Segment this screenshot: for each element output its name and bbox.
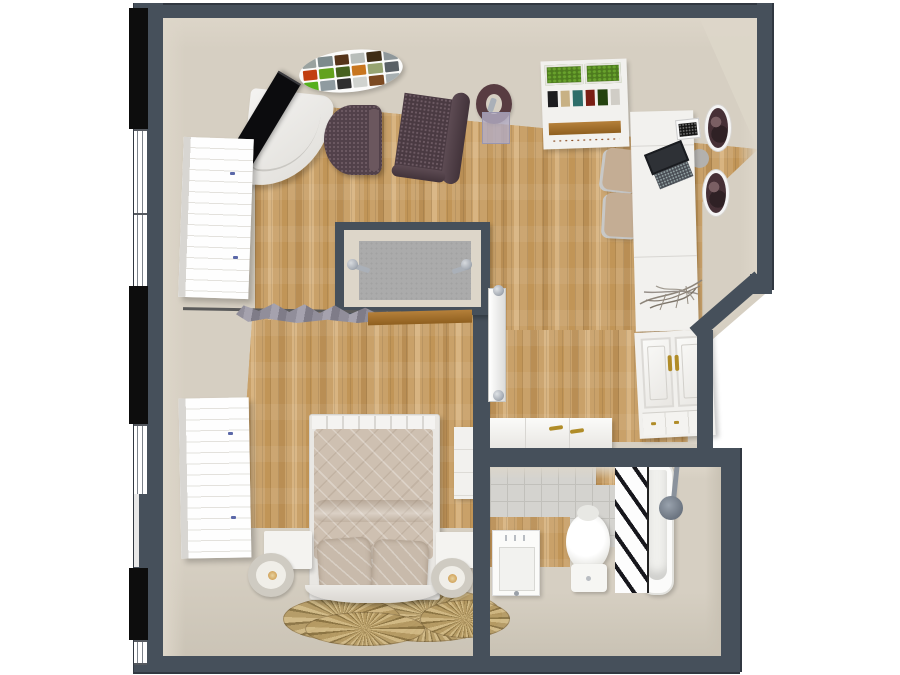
planter-box — [585, 63, 622, 84]
book-spine — [585, 90, 595, 106]
shelf-cell — [319, 68, 334, 79]
shower-head[interactable] — [659, 496, 683, 520]
floor-plan-canvas — [0, 0, 900, 675]
wall-dressing-right — [697, 330, 713, 452]
wall-top — [146, 3, 772, 18]
shelf-cell — [334, 54, 349, 65]
wall-right — [757, 3, 774, 290]
shelf-items — [551, 137, 619, 143]
book-row — [548, 89, 621, 108]
bathtub-basin — [647, 470, 667, 580]
wardrobe[interactable] — [178, 137, 254, 299]
plant-shelf[interactable] — [540, 59, 629, 150]
window — [134, 494, 147, 567]
book-spine — [573, 90, 583, 106]
wall-plate-decor[interactable] — [703, 170, 729, 216]
wall-left — [146, 3, 163, 672]
sink-drain — [514, 591, 519, 596]
wardrobe-handle — [233, 256, 238, 259]
lamp-bulb — [448, 574, 457, 583]
wardrobe-door — [641, 337, 675, 408]
dresser-seam — [569, 418, 570, 452]
desk-seam — [634, 255, 697, 258]
window — [134, 640, 147, 665]
wardrobe-handle — [674, 355, 679, 371]
book-spine — [598, 89, 608, 105]
towel-ladder[interactable] — [615, 461, 649, 593]
dark-door-panel — [129, 568, 148, 640]
shower-fixture[interactable] — [347, 259, 358, 270]
wall-corner — [750, 274, 772, 294]
shelf-cell — [350, 52, 365, 63]
shelf-cell — [366, 51, 381, 62]
desk-radio[interactable] — [675, 118, 701, 140]
wall-bathroom-top — [473, 448, 740, 467]
wardrobe-handle — [228, 432, 233, 435]
sink-basin — [499, 547, 535, 591]
lamp-bulb — [268, 571, 277, 580]
radiator[interactable] — [488, 288, 506, 402]
book-spine — [610, 89, 620, 105]
fan-rug[interactable] — [305, 612, 425, 646]
fan-rug[interactable] — [420, 600, 510, 638]
wardrobe-handle — [231, 516, 236, 519]
bed-foot-rail — [312, 416, 435, 429]
floor-lamp-base — [482, 112, 510, 144]
chair-cushion — [369, 109, 379, 171]
window — [134, 213, 147, 290]
shelf-cell — [368, 63, 383, 74]
shelf-cell — [351, 64, 366, 75]
dark-door-panel — [129, 8, 148, 129]
window — [134, 129, 147, 215]
shelf-board — [549, 121, 621, 136]
sink[interactable] — [492, 530, 540, 596]
toilet-lid — [577, 505, 599, 521]
wall-plate-decor[interactable] — [705, 105, 731, 151]
radiator-valve — [493, 390, 504, 401]
dresser[interactable] — [483, 418, 612, 452]
left-wall-windows — [133, 3, 147, 672]
shelf-cell — [384, 61, 399, 72]
shelf-cell — [320, 80, 335, 91]
duvet-fold — [314, 500, 433, 522]
shower-fixture[interactable] — [461, 259, 472, 270]
wall-bottom — [133, 656, 740, 674]
wall-board[interactable] — [368, 310, 472, 326]
book-spine — [548, 91, 558, 107]
wardrobe-handle — [667, 355, 672, 371]
dark-door-panel — [129, 286, 148, 424]
twig-decoration[interactable] — [636, 264, 706, 316]
wall-bathroom-right — [721, 448, 742, 672]
drawer-knob — [651, 422, 656, 425]
planter-box — [545, 64, 584, 85]
drawer-knob — [674, 421, 679, 424]
toilet-tank — [571, 564, 607, 592]
shelf-cell — [336, 78, 351, 89]
wardrobe[interactable] — [179, 397, 252, 558]
sink-taps — [505, 535, 527, 541]
shelf-cell — [303, 70, 318, 81]
toilet[interactable] — [566, 513, 610, 571]
radiator-valve — [493, 285, 504, 296]
tub-chair[interactable] — [324, 105, 382, 175]
dresser-seam — [525, 418, 526, 452]
shelf-cell — [369, 75, 384, 86]
shelf-cell — [335, 66, 350, 77]
book-spine — [560, 91, 570, 107]
wardrobe-handle — [230, 172, 235, 175]
shelf-cell — [353, 76, 368, 87]
armchair[interactable] — [391, 85, 473, 186]
window — [134, 424, 147, 498]
shelf-cell — [318, 56, 333, 67]
